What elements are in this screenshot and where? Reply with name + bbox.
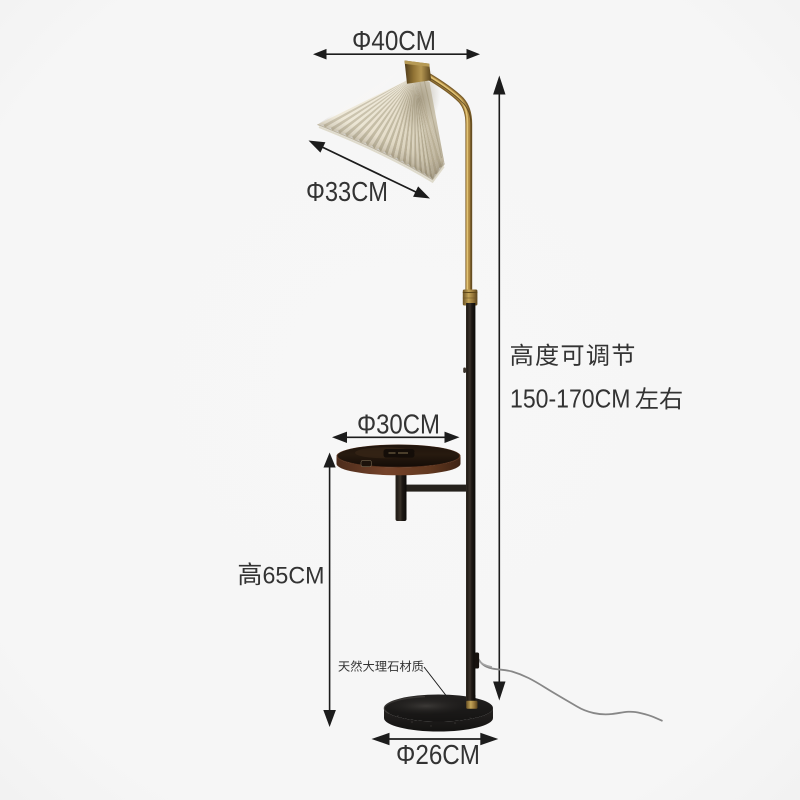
- svg-text:Φ30CM: Φ30CM: [357, 409, 440, 440]
- svg-text:65CM: 65CM: [263, 563, 325, 590]
- svg-text:150-170CM: 150-170CM: [510, 384, 631, 414]
- svg-text:Φ33CM: Φ33CM: [306, 176, 388, 207]
- svg-text:Φ40CM: Φ40CM: [352, 25, 436, 56]
- svg-text:Φ26CM: Φ26CM: [396, 739, 480, 770]
